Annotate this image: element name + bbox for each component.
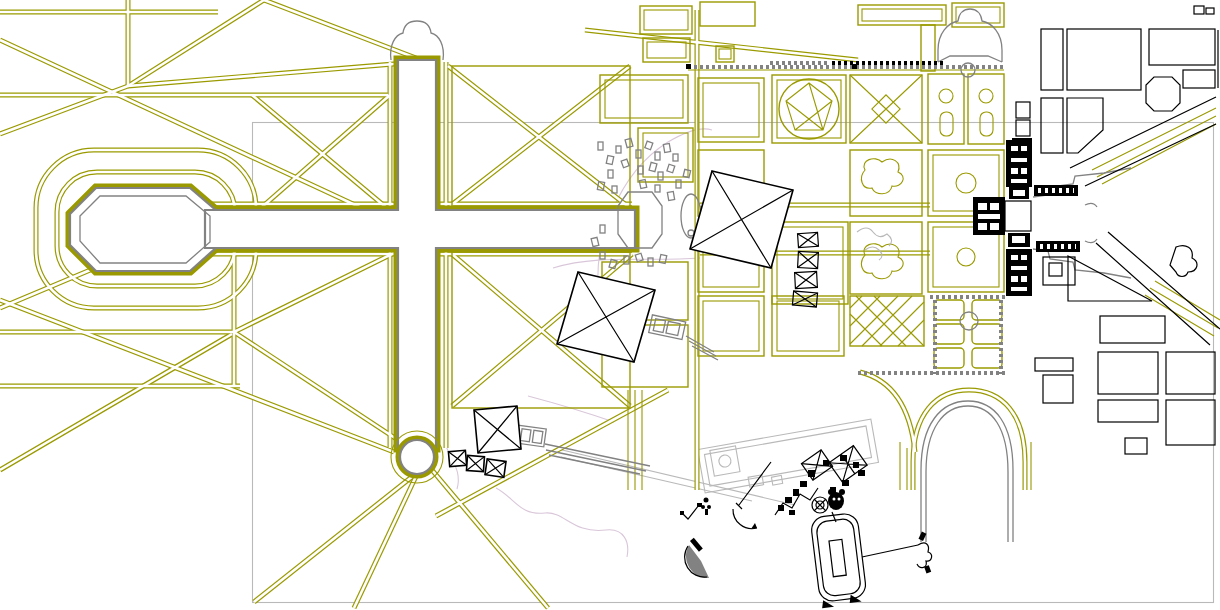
- cad-viewport: [0, 0, 1220, 610]
- line-glyph: [736, 462, 771, 509]
- stadium-block: [810, 512, 868, 608]
- x-square-marker-3: [474, 406, 521, 453]
- scatter-glyphs: [680, 462, 771, 578]
- machinery-cluster: [775, 446, 867, 522]
- x-square-marker-2: [557, 272, 655, 362]
- neptune-basin: [938, 9, 1002, 62]
- rod-and-hook: [862, 532, 932, 574]
- small-x-boxes: [448, 450, 506, 477]
- town-street-grid: [1035, 6, 1220, 454]
- site-plan-canvas[interactable]: [0, 0, 1220, 610]
- roundabout-octagon: [1146, 77, 1180, 111]
- wedge-glyph: [686, 545, 709, 578]
- cul-de-sac-blob: [1170, 246, 1197, 277]
- ne-avenue-borders: [1070, 97, 1216, 186]
- midi-fountain: [960, 312, 978, 330]
- swiss-lake-arch: [921, 401, 1013, 542]
- parterre-du-midi: [934, 300, 1002, 368]
- grand-canal: [70, 21, 635, 483]
- survey-block-b: [649, 315, 686, 340]
- hatched-stable-bars: [1034, 185, 1080, 252]
- canal-north-trefoil: [391, 21, 444, 60]
